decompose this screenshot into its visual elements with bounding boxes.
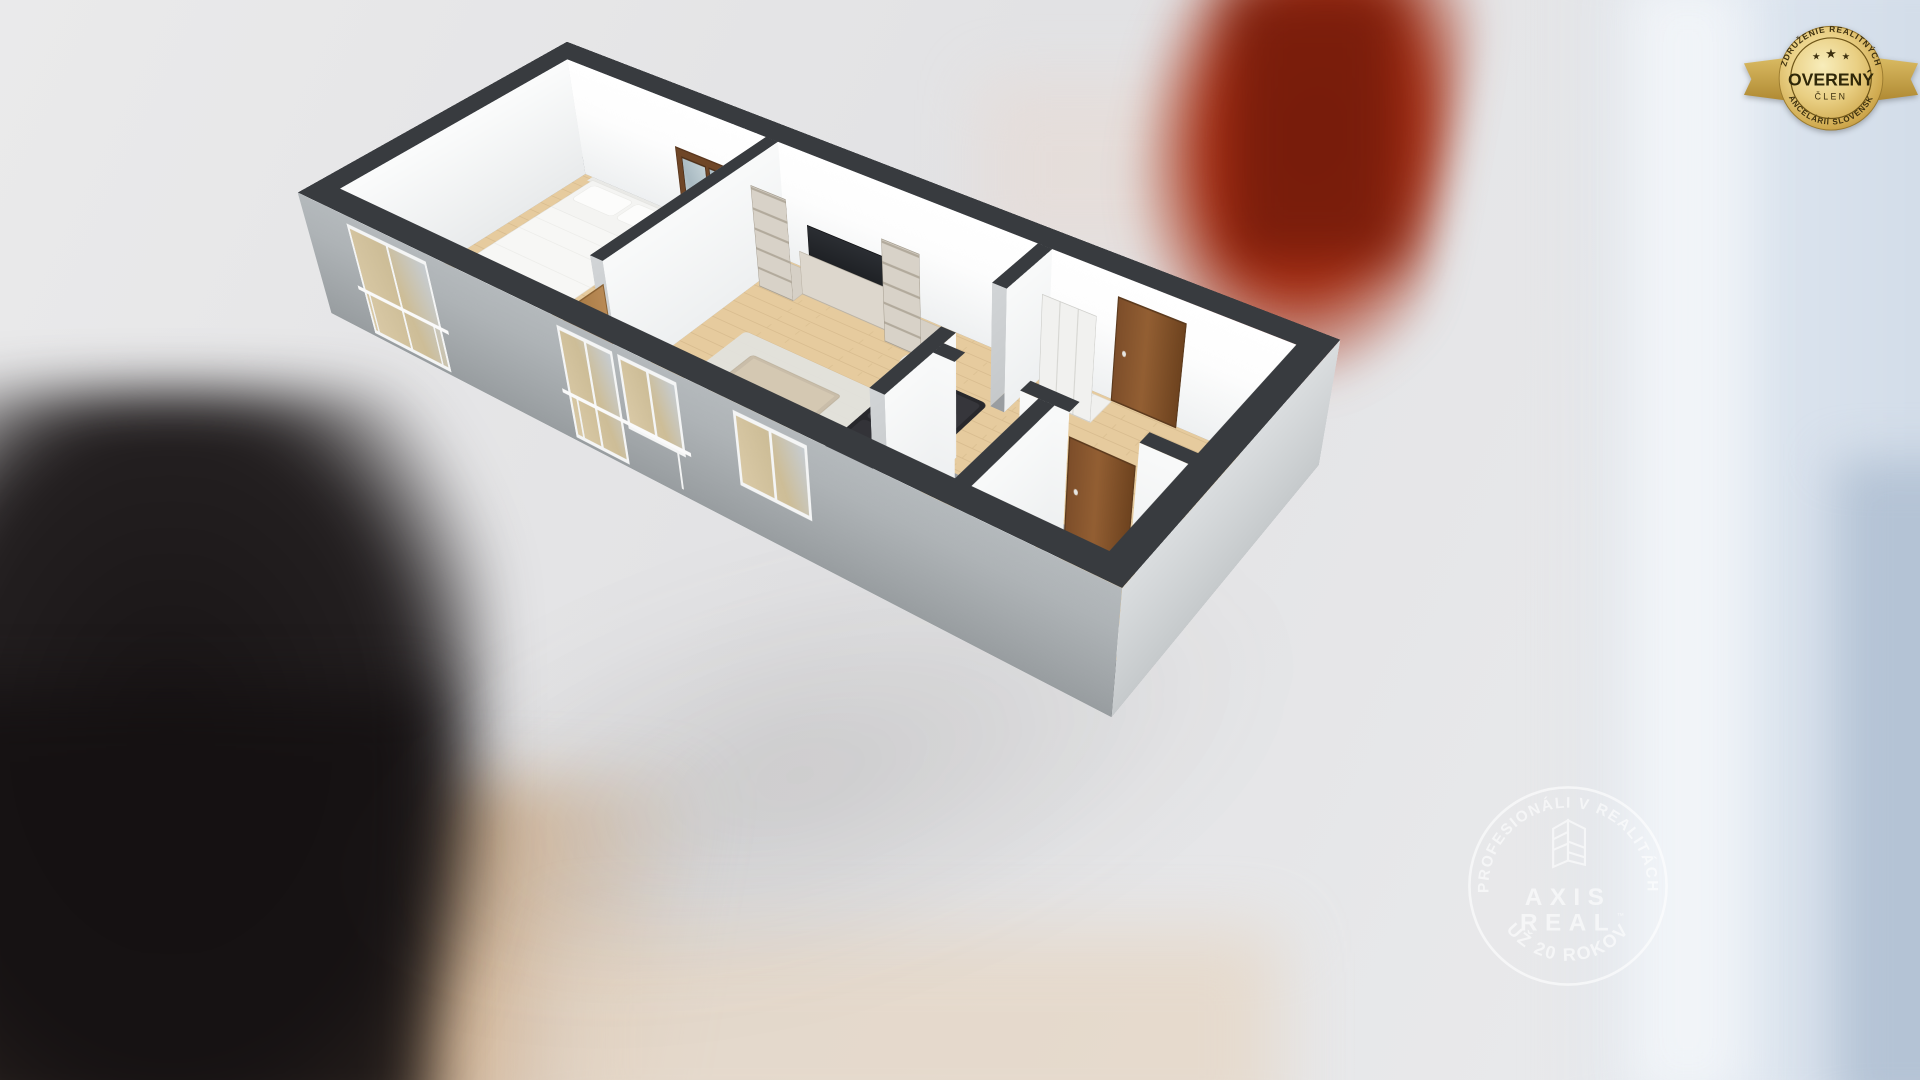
divider-wall-top	[955, 398, 1054, 486]
badge-title: OVERENÝ	[1788, 69, 1874, 90]
badge-star-left: ★	[1812, 52, 1820, 62]
badge-star-center: ★	[1825, 46, 1837, 61]
badge-subtitle: ČLEN	[1815, 92, 1848, 102]
divider-wall-top	[992, 243, 1052, 288]
watermark-trademark: ™	[1617, 911, 1624, 920]
divider-wall-top	[1140, 432, 1199, 464]
badge-star-right: ★	[1842, 52, 1850, 62]
divider-wall-top	[869, 326, 956, 394]
watermark-logo-real: REAL	[1520, 910, 1616, 937]
real-estate-3d-floorplan-image: { "badge": { "arc_top": "ZDRUŽENIE REALI…	[0, 0, 1920, 1080]
axis-real-watermark: PROFESIONÁLI V REALITÁCH AXIS REAL ™ UŽ …	[1462, 780, 1674, 992]
divider-wall-top	[590, 137, 778, 261]
building-icon	[1553, 820, 1585, 867]
watermark-logo-axis: AXIS	[1525, 884, 1612, 911]
overeny-clen-badge: ZDRUŽENIE REALITNÝCH ★ ★ ★ OVERENÝ ČLEN …	[1738, 6, 1920, 156]
apartment-3d-model	[331, 156, 1318, 718]
